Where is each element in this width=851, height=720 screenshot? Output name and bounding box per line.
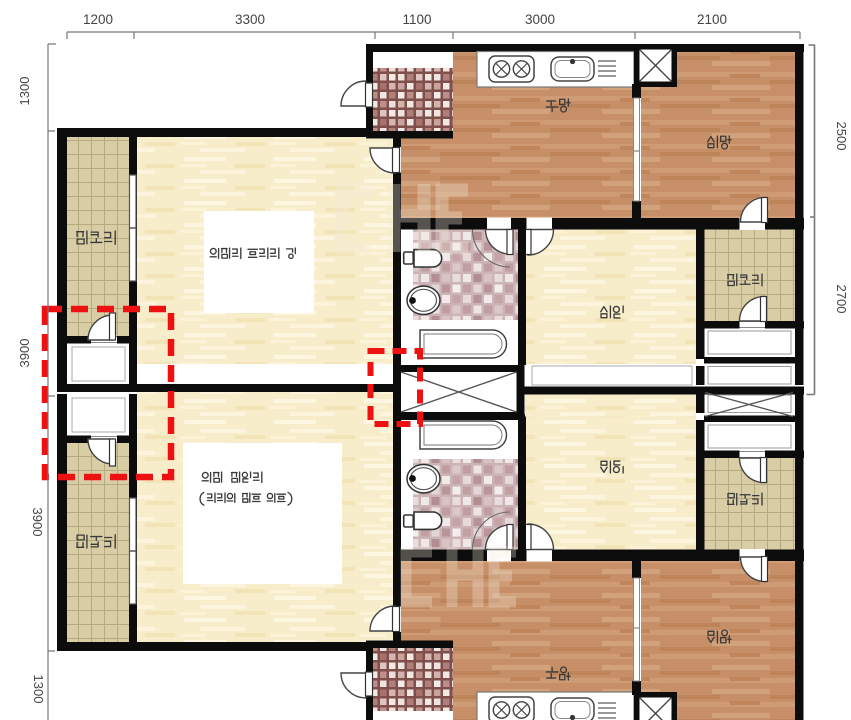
svg-text:1200: 1200: [83, 12, 113, 27]
svg-text:2500: 2500: [834, 122, 849, 151]
svg-text:1300: 1300: [31, 675, 46, 704]
svg-text:3900: 3900: [17, 339, 32, 368]
svg-text:2700: 2700: [834, 285, 849, 314]
svg-text:3900: 3900: [30, 508, 45, 537]
svg-text:3000: 3000: [525, 12, 555, 27]
svg-text:3300: 3300: [235, 12, 265, 27]
svg-text:2100: 2100: [697, 12, 727, 27]
svg-text:1100: 1100: [402, 12, 431, 27]
svg-text:1300: 1300: [17, 77, 32, 106]
